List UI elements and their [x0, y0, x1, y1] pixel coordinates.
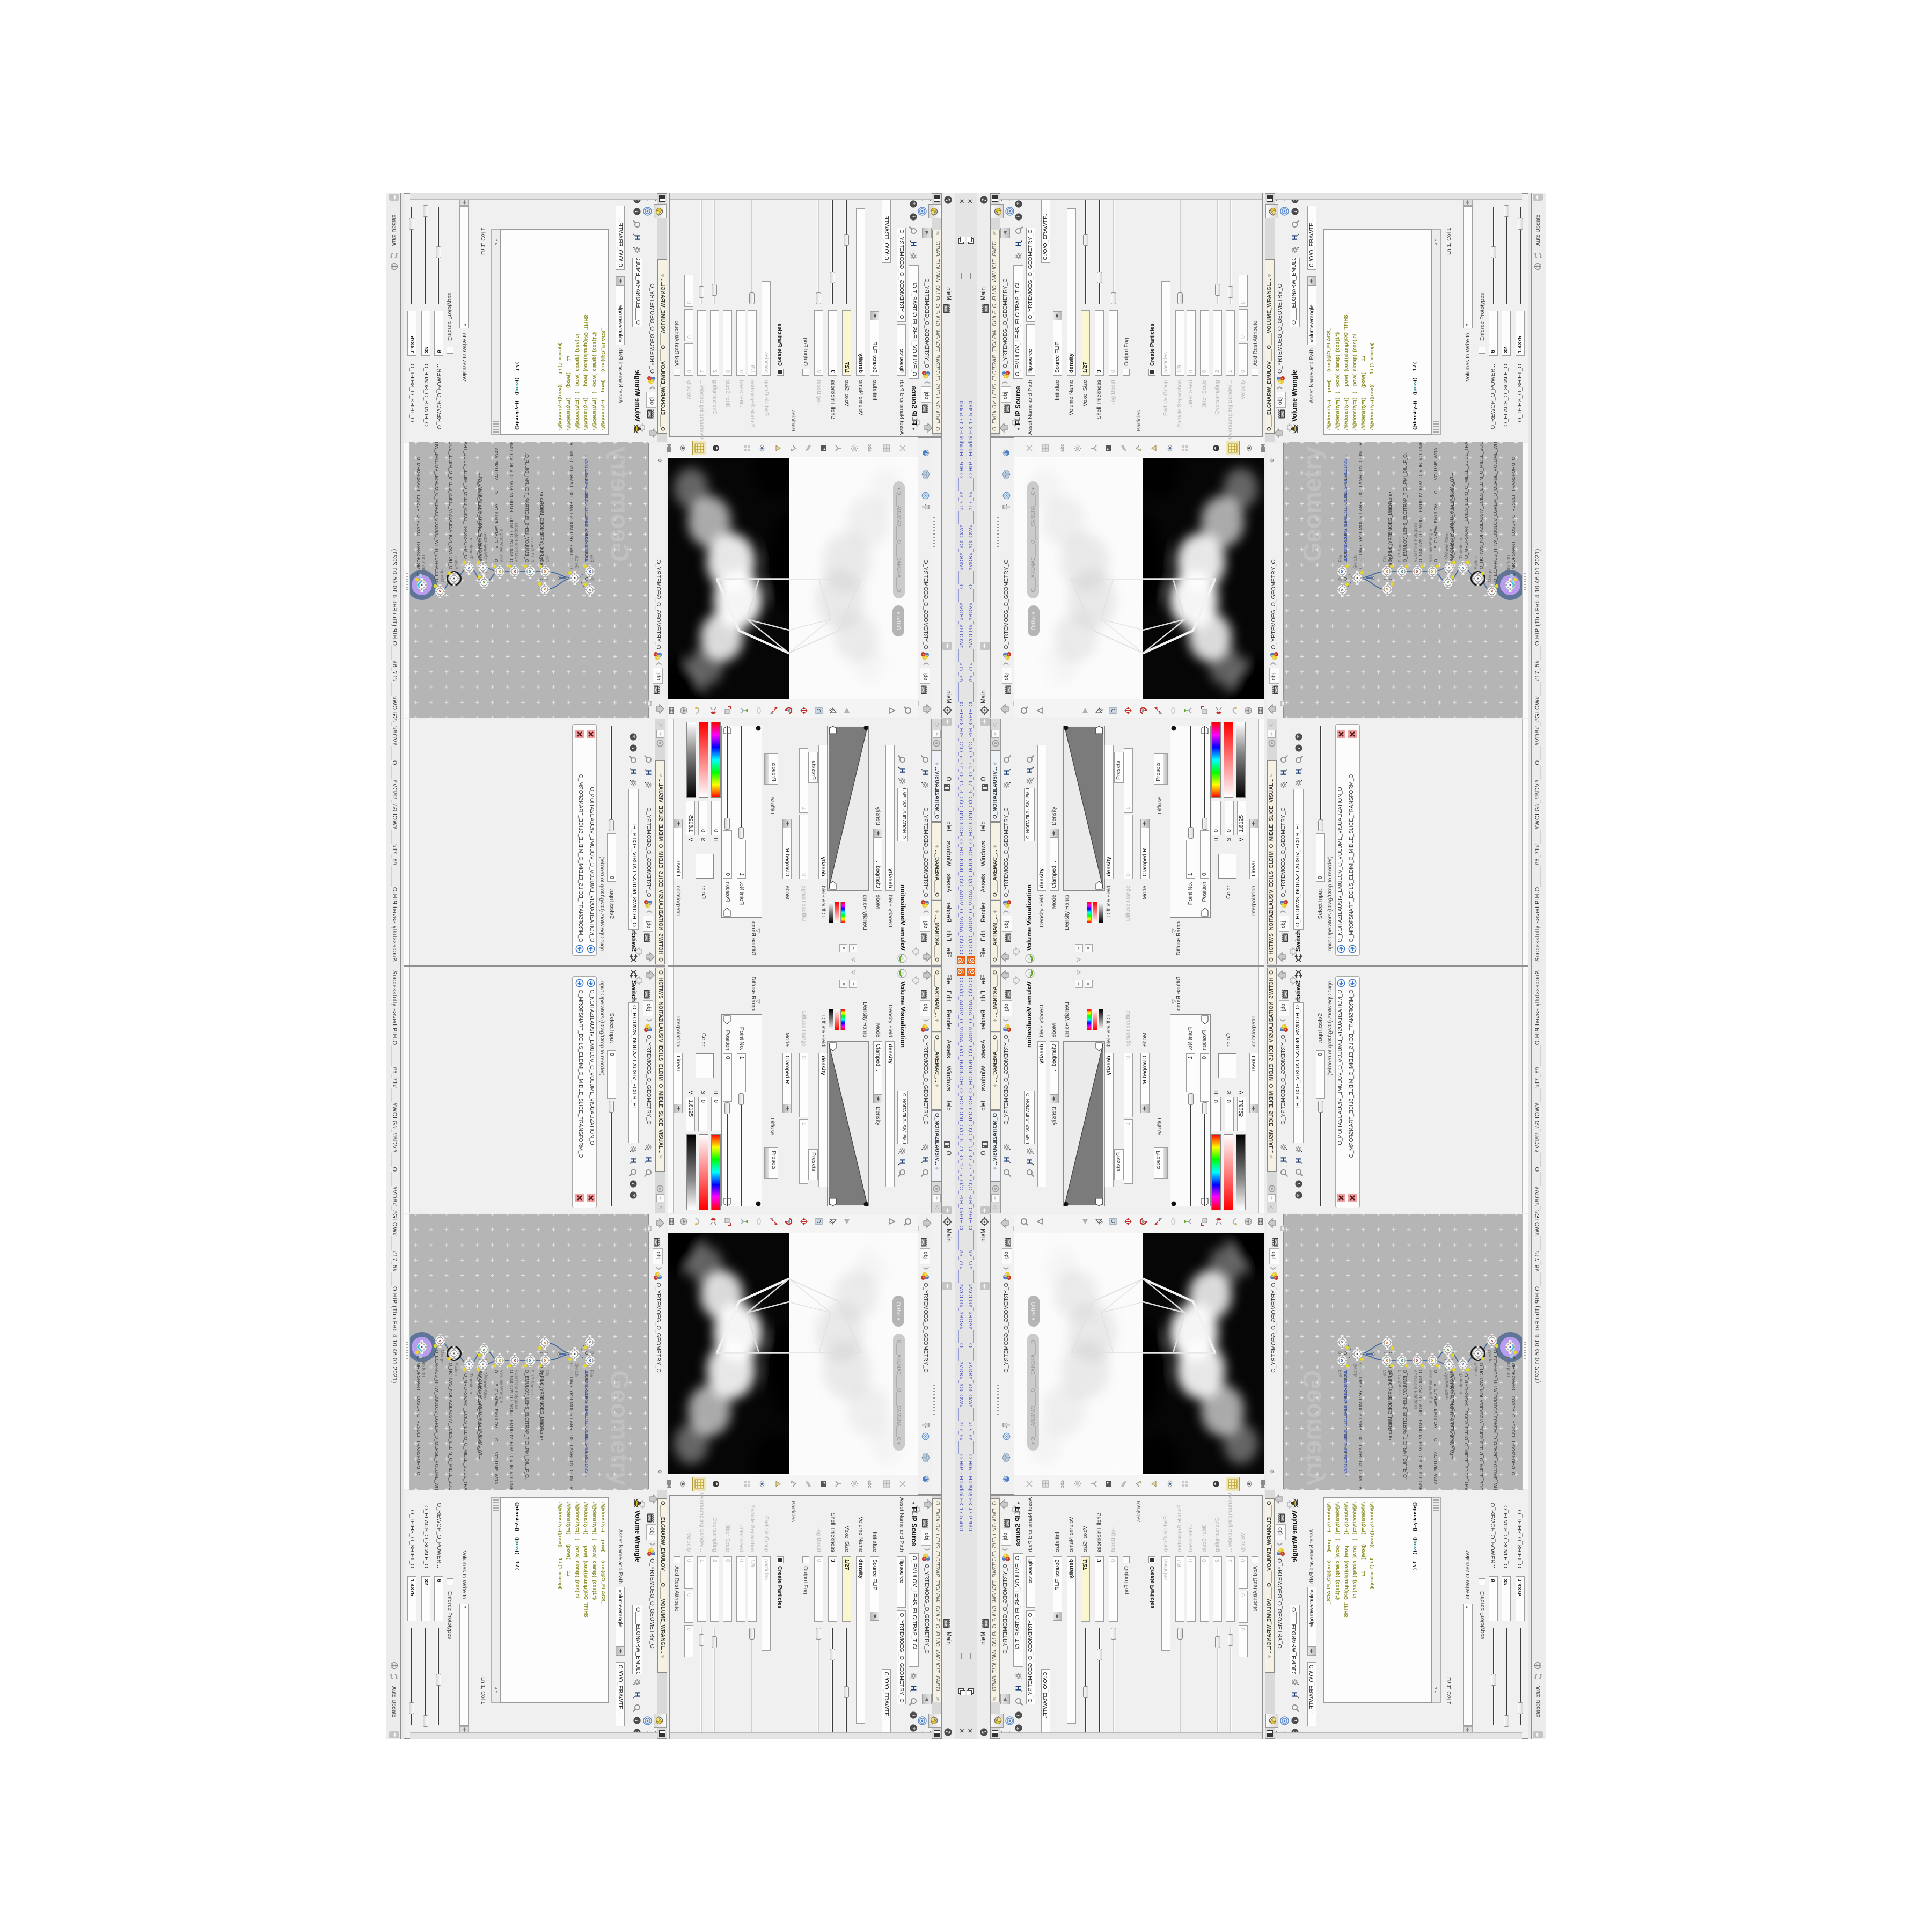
svg-text:O_ECILS_ELDIM_O_MIDLE_SLICE_O: O_ECILS_ELDIM_O_MIDLE_SLICE_O [1450, 478, 1455, 559]
svg-text:VDB from Polygons: VDB from Polygons [1413, 1370, 1418, 1409]
svg-text:?: ? [910, 202, 916, 206]
svg-text:Switch: Switch [1352, 1363, 1358, 1377]
svg-text:File: File [589, 555, 595, 562]
svg-text:i: i [1016, 1715, 1022, 1716]
svg-text:H: H [898, 1159, 906, 1164]
svg-text:O_HCTIWS_NOITAZILAUSIV_ECILS_E: O_HCTIWS_NOITAZILAUSIV_ECILS_ELDIM_O_MID… [448, 442, 453, 569]
svg-text:O_SNOGYLOP_MORF_EMULOV_BDV_O_V: O_SNOGYLOP_MORF_EMULOV_BDV_O_VDB_VOLUME.… [509, 442, 514, 562]
svg-text:File: File [1337, 555, 1343, 562]
svg-text:O_ECILS_ELDIM_O_MIDLE_SLICE_O: O_ECILS_ELDIM_O_MIDLE_SLICE_O [477, 478, 482, 559]
svg-text:?: ? [630, 1194, 636, 1197]
svg-text:Transform: Transform [469, 1373, 474, 1394]
svg-text:O_PILC_YRTEMOEG_MODF...: O_PILC_YRTEMOEG_MODF... [1387, 1370, 1393, 1433]
svg-text:Volume Slice: Volume Slice [482, 1373, 488, 1400]
svg-text:O_HCTIWS_YRTEMOEG_LANRETXE_LAN: O_HCTIWS_YRTEMOEG_LANRETXE_LANRETNI_O_IN… [569, 1363, 574, 1490]
svg-text:VDB from Polygons: VDB from Polygons [514, 1370, 519, 1409]
svg-text:Volume Slice: Volume Slice [482, 532, 488, 559]
svg-text:H: H [1279, 770, 1287, 775]
svg-text:O_SNOGYLOP_MORF_EMULOV_BDV_O_V: O_SNOGYLOP_MORF_EMULOV_BDV_O_VDB_VOLUME.… [1418, 442, 1423, 562]
svg-text:O_HCTIWS_YRTEMOEG_LANRETXE_LAN: O_HCTIWS_YRTEMOEG_LANRETXE_LANRETNI_O_IN… [1358, 442, 1363, 569]
svg-text:O_HCTIWS_YRTEMOEG_LANRETXE_LAN: O_HCTIWS_YRTEMOEG_LANRETXE_LANRETNI_O_IN… [569, 442, 574, 569]
svg-text:O_SNOGYLOP_MORF_EMULOV_BDV_O_V: O_SNOGYLOP_MORF_EMULOV_BDV_O_VDB_VOLUME.… [1418, 1370, 1423, 1490]
svg-text:H: H [1002, 1157, 1011, 1162]
svg-text:H: H [1294, 1158, 1302, 1163]
svg-text:Switch: Switch [1473, 556, 1479, 569]
svg-text:Clip: Clip [545, 554, 550, 562]
svg-text:O_MROFSNART_TLUSER_O_RESULT_TR: O_MROFSNART_TLUSER_O_RESULT_TRANSFORM_O [1511, 456, 1516, 576]
svg-text:FLIP Source: FLIP Source [1397, 1370, 1402, 1395]
svg-text:?: ? [945, 1730, 950, 1733]
svg-text:?: ? [1296, 1194, 1302, 1197]
svg-text:D: D [815, 709, 821, 713]
svg-text:H: H [645, 770, 653, 775]
svg-text:O_MROFSNART_TLUSER_O_RESULT_TR: O_MROFSNART_TLUSER_O_RESULT_TRANSFORM_O [1511, 1356, 1516, 1476]
svg-text:H: H [1002, 770, 1011, 775]
svg-text:Volume Slice: Volume Slice [1444, 1373, 1450, 1400]
svg-text:JBO.MO3.PETS.TEPOLS.O_XOREG_O_: JBO.MO3.PETS.TEPOLS.O_XOREG_O_CESUSS... [584, 1370, 589, 1477]
svg-text:VDB from Polygons: VDB from Polygons [514, 523, 519, 562]
svg-text:H: H [645, 1157, 653, 1162]
svg-text:Transform: Transform [1458, 1373, 1463, 1394]
svg-text:O_PILC_YRTEMOEG_MODF...: O_PILC_YRTEMOEG_MODF... [539, 1370, 545, 1433]
svg-text:i: i [630, 747, 636, 749]
svg-text:FLIP Source: FLIP Source [1397, 537, 1402, 562]
svg-text:File: File [589, 1370, 595, 1377]
svg-text:H: H [1026, 767, 1034, 773]
svg-text:?: ? [910, 1726, 916, 1730]
svg-text:?: ? [945, 198, 950, 201]
svg-text:i: i [630, 1183, 636, 1185]
svg-text:Switch: Switch [453, 1363, 459, 1376]
svg-text:i: i [1296, 747, 1302, 749]
svg-text:Transform: Transform [469, 538, 474, 559]
svg-text:?: ? [1016, 202, 1022, 206]
svg-text:D: D [1111, 1219, 1117, 1223]
svg-text:JBO.MO3.PETS.TEPOLS.O_XOREG_O_: JBO.MO3.PETS.TEPOLS.O_XOREG_O_CESUSS... [1343, 1370, 1348, 1477]
svg-text:i: i [1296, 1183, 1302, 1185]
svg-text:i: i [1016, 216, 1022, 217]
svg-text:O_HCTIWS_NOITAZILAUSIV_ECILS_E: O_HCTIWS_NOITAZILAUSIV_ECILS_ELDIM_O_MID… [1479, 1363, 1484, 1490]
svg-text:H: H [630, 769, 638, 774]
svg-text:O____ELGNARW_EMULOV____O____VO: O____ELGNARW_EMULOV____O____VOLUME_WRA..… [494, 1370, 499, 1488]
svg-text:H: H [630, 1158, 638, 1163]
svg-text:H: H [921, 1157, 930, 1162]
svg-text:Switch: Switch [574, 555, 580, 569]
svg-text:i: i [634, 210, 640, 212]
svg-text:Switch: Switch [453, 556, 459, 569]
svg-text:H: H [910, 241, 918, 246]
svg-text:O_MROFSNART_TLUSER_O_RESULT_TR: O_MROFSNART_TLUSER_O_RESULT_TRANSFORM_O [416, 456, 421, 576]
svg-text:O_MROFSNART_TLUSER_O_RESULT_TR: O_MROFSNART_TLUSER_O_RESULT_TRANSFORM_O [416, 1356, 421, 1476]
svg-text:?: ? [982, 198, 987, 201]
svg-text:Switch: Switch [1473, 1363, 1479, 1376]
svg-text:Switch: Switch [1352, 555, 1358, 569]
svg-text:O_HCTIWS_NOITAZILAUSIV_ECILS_E: O_HCTIWS_NOITAZILAUSIV_ECILS_ELDIM_O_MID… [448, 1363, 453, 1490]
svg-text:O_HCTIWS_YRTEMOEG_LANRETXE_LAN: O_HCTIWS_YRTEMOEG_LANRETXE_LANRETNI_O_IN… [1358, 1363, 1363, 1490]
svg-text:FLIP Source: FLIP Source [530, 1370, 535, 1395]
svg-text:H: H [910, 1685, 918, 1690]
svg-text:Switch: Switch [574, 1363, 580, 1377]
svg-text:i: i [1292, 210, 1298, 212]
svg-text:i: i [1292, 1720, 1298, 1722]
svg-text:O_SNOGYLOP_MORF_EMULOV_BDV_O_V: O_SNOGYLOP_MORF_EMULOV_BDV_O_VDB_VOLUME.… [509, 1370, 514, 1490]
svg-text:File: File [1337, 1370, 1343, 1377]
svg-text:O____ELGNARW_EMULOV____O____VO: O____ELGNARW_EMULOV____O____VOLUME_WRA..… [1433, 444, 1438, 562]
svg-text:Volume Wrangle: Volume Wrangle [499, 529, 504, 562]
svg-text:H: H [1294, 769, 1302, 774]
svg-text:H: H [1026, 1159, 1034, 1164]
svg-text:H: H [921, 770, 930, 775]
svg-text:O_PILC_YRTEMOEG_MODF...: O_PILC_YRTEMOEG_MODF... [1387, 499, 1393, 562]
svg-text:H: H [633, 235, 641, 240]
svg-text:H: H [898, 767, 906, 773]
svg-text:O_EMULOV_LEHS_ELCITRAP_TICILPM: O_EMULOV_LEHS_ELCITRAP_TICILPMI_DIULF_O.… [1402, 1370, 1408, 1482]
svg-text:?: ? [630, 735, 636, 738]
svg-text:H: H [1014, 1685, 1022, 1690]
svg-text:i: i [634, 1720, 640, 1722]
svg-text:O_HCTIWS_NOITAZILAUSIV_ECILS_E: O_HCTIWS_NOITAZILAUSIV_ECILS_ELDIM_O_MID… [1479, 442, 1484, 569]
svg-text:FLIP Source: FLIP Source [530, 537, 535, 562]
svg-text:H: H [633, 1692, 641, 1697]
svg-text:O____ELGNARW_EMULOV____O____VO: O____ELGNARW_EMULOV____O____VOLUME_WRA..… [494, 444, 499, 562]
svg-text:H: H [1291, 235, 1299, 240]
svg-text:Volume Wrangle: Volume Wrangle [1428, 1370, 1433, 1403]
svg-text:JBO.MO3.PETS.TEPOLS.O_XOREG_O_: JBO.MO3.PETS.TEPOLS.O_XOREG_O_CESUSS... [1343, 455, 1348, 562]
svg-text:O_EMULOV_LEHS_ELCITRAP_TICILPM: O_EMULOV_LEHS_ELCITRAP_TICILPMI_DIULF_O.… [1402, 450, 1408, 562]
svg-text:O_EMULOV_LEHS_ELCITRAP_TICILPM: O_EMULOV_LEHS_ELCITRAP_TICILPMI_DIULF_O.… [524, 450, 530, 562]
svg-text:Volume Slice: Volume Slice [1444, 532, 1450, 559]
svg-text:Transform: Transform [1458, 538, 1463, 559]
svg-text:H: H [1014, 241, 1022, 246]
svg-text:i: i [910, 1715, 916, 1716]
svg-text:Clip: Clip [545, 1370, 550, 1378]
svg-text:Volume Wrangle: Volume Wrangle [1428, 529, 1433, 562]
svg-text:?: ? [1016, 1726, 1022, 1730]
svg-text:D: D [815, 1219, 821, 1223]
svg-text:O_EMULOV_LEHS_ELCITRAP_TICILPM: O_EMULOV_LEHS_ELCITRAP_TICILPMI_DIULF_O.… [524, 1370, 530, 1482]
svg-text:H: H [1279, 1157, 1287, 1162]
svg-text:D: D [1111, 709, 1117, 713]
svg-text:O____ELGNARW_EMULOV____O____VO: O____ELGNARW_EMULOV____O____VOLUME_WRA..… [1433, 1370, 1438, 1488]
svg-text:Clip: Clip [1382, 1370, 1387, 1378]
svg-text:O_PILC_YRTEMOEG_MODF...: O_PILC_YRTEMOEG_MODF... [539, 499, 545, 562]
svg-text:i: i [910, 216, 916, 217]
svg-text:O_ECILS_ELDIM_O_MIDLE_SLICE_O: O_ECILS_ELDIM_O_MIDLE_SLICE_O [1450, 1373, 1455, 1454]
svg-text:VDB from Polygons: VDB from Polygons [1413, 523, 1418, 562]
svg-text:Clip: Clip [1382, 554, 1387, 562]
svg-text:?: ? [1296, 735, 1302, 738]
svg-text:JBO.MO3.PETS.TEPOLS.O_XOREG_O_: JBO.MO3.PETS.TEPOLS.O_XOREG_O_CESUSS... [584, 455, 589, 562]
svg-text:Volume Wrangle: Volume Wrangle [499, 1370, 504, 1403]
svg-text:?: ? [982, 1730, 987, 1733]
svg-text:H: H [1291, 1692, 1299, 1697]
svg-text:O_ECILS_ELDIM_O_MIDLE_SLICE_O: O_ECILS_ELDIM_O_MIDLE_SLICE_O [477, 1373, 482, 1454]
